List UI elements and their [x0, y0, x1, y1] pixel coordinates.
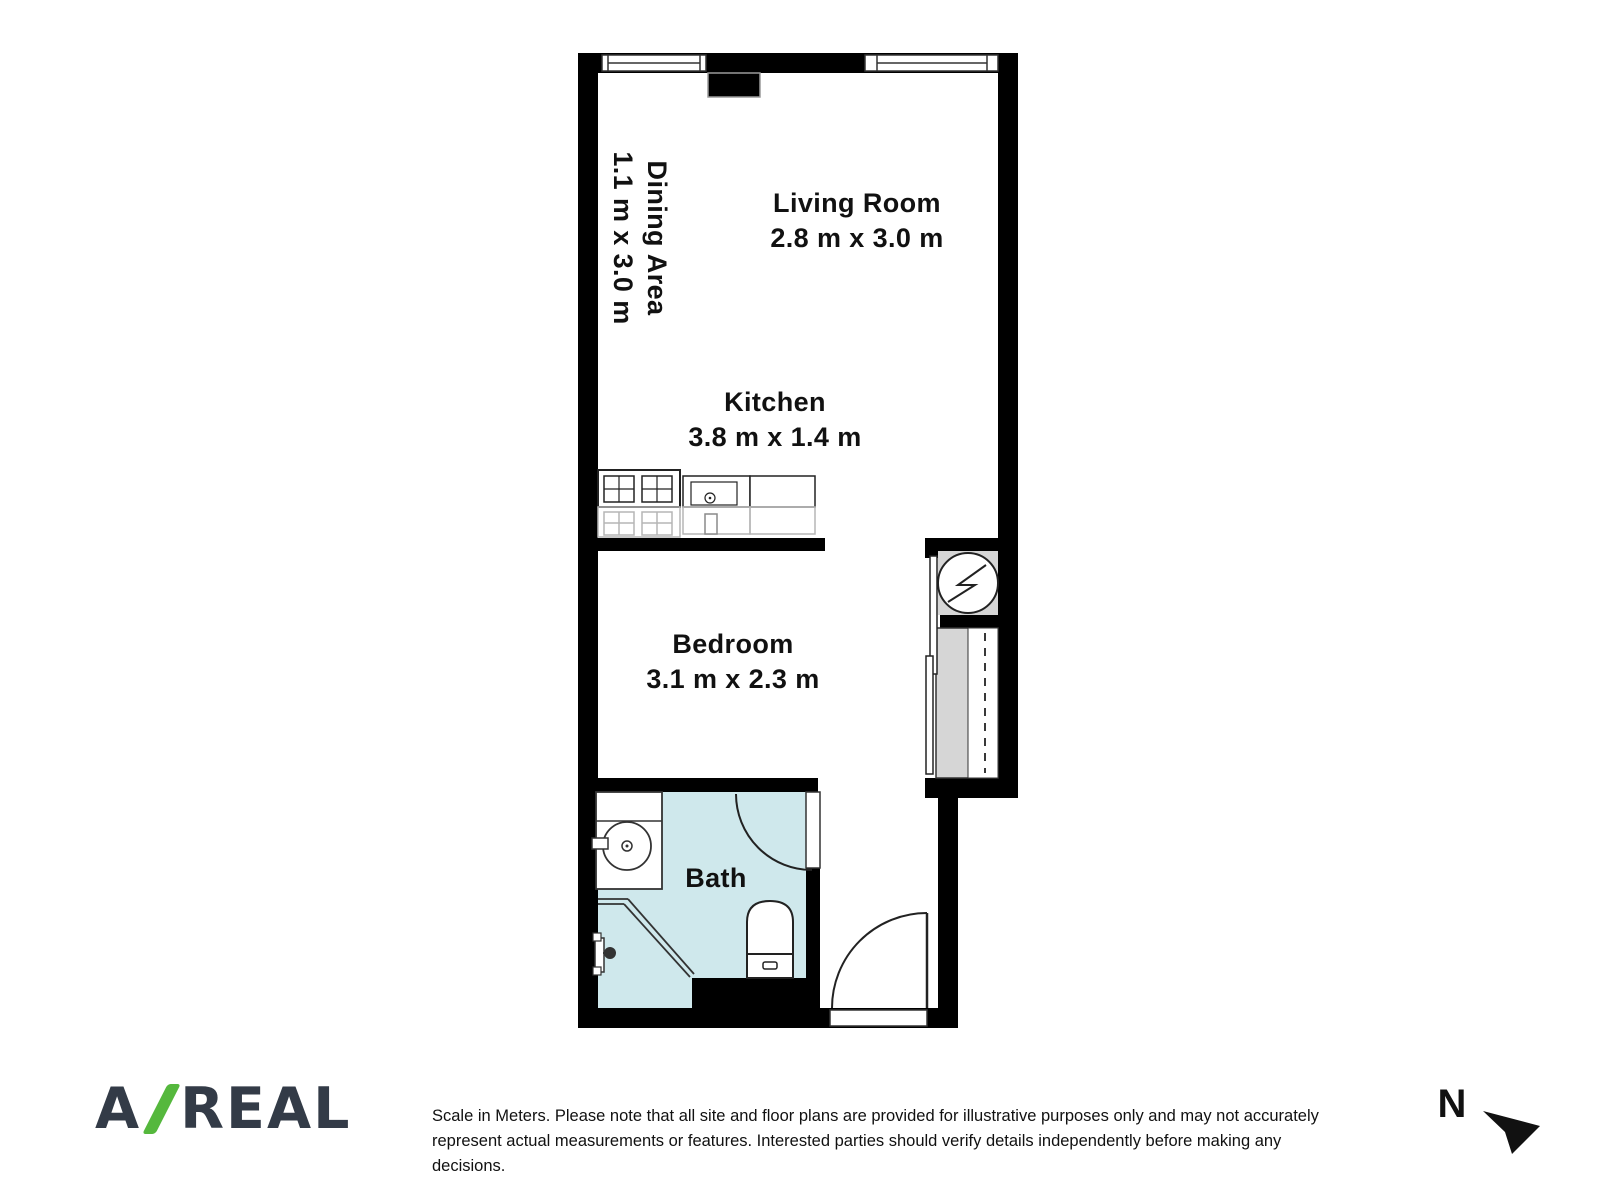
room-label-living: Living Room 2.8 m x 3.0 m [770, 188, 943, 253]
room-label-dining: Dining Area 1.1 m x 3.0 m [608, 151, 672, 324]
room-name: Dining Area [642, 161, 672, 317]
wall-niche-top [925, 538, 1018, 551]
wall-kitchen-bedroom [598, 538, 825, 551]
room-label-bath: Bath [685, 863, 747, 893]
compass-north-label: N [1438, 1082, 1467, 1126]
wall-left [578, 53, 598, 1028]
wall-bath-top [578, 778, 818, 792]
wall-protrusion [708, 73, 760, 97]
logo-word: REAL [180, 1082, 351, 1136]
room-dimensions: 3.1 m x 2.3 m [646, 664, 819, 694]
room-label-bedroom: Bedroom 3.1 m x 2.3 m [646, 629, 819, 694]
compass: N [1438, 1082, 1540, 1154]
wall-niche-bottom [940, 615, 998, 628]
bath-door-leaf [806, 792, 820, 868]
wall-niche-stub [925, 538, 938, 558]
disclaimer-line-2: represent actual measurements or feature… [432, 1129, 1352, 1179]
wall-bath-bottom-chunk [692, 978, 820, 1028]
entry-door-swing [832, 913, 927, 1008]
room-name: Bedroom [672, 629, 793, 659]
brand-logo: A REAL [95, 1082, 351, 1136]
stove-cooktop-icon [598, 470, 680, 507]
floorplan-page: Dining Area 1.1 m x 3.0 m Living Room 2.… [0, 0, 1600, 1200]
disclaimer-line-1: Scale in Meters. Please note that all si… [432, 1104, 1352, 1129]
window-icon-left [602, 55, 706, 71]
counter-icon [750, 476, 815, 507]
sliding-door-panel [926, 656, 933, 774]
wall-bath-right [806, 867, 820, 978]
room-dimensions: 2.8 m x 3.0 m [770, 223, 943, 253]
north-arrow-icon [1483, 1111, 1540, 1154]
room-name: Living Room [773, 188, 941, 218]
disclaimer-text: Scale in Meters. Please note that all si… [432, 1104, 1352, 1178]
room-name: Kitchen [724, 387, 826, 417]
kitchen-counter [598, 470, 815, 537]
floorplan-drawing: Dining Area 1.1 m x 3.0 m Living Room 2.… [0, 0, 1600, 1200]
logo-slash-icon [142, 1084, 180, 1134]
wall-entry-right [938, 778, 958, 1028]
vanity-sink-icon [592, 792, 662, 889]
wall-right [998, 53, 1018, 798]
counter-mirror [598, 507, 815, 537]
washer-icon [938, 553, 998, 613]
kitchen-sink-icon [683, 476, 750, 507]
entry-door-threshold [830, 1010, 927, 1026]
logo-letter-a: A [95, 1082, 141, 1136]
room-dimensions: 1.1 m x 3.0 m [608, 151, 638, 324]
room-name: Bath [685, 863, 747, 893]
toilet-icon [747, 901, 793, 978]
room-dimensions: 3.8 m x 1.4 m [688, 422, 861, 452]
room-label-kitchen: Kitchen 3.8 m x 1.4 m [688, 387, 861, 452]
wardrobe-closet [936, 628, 998, 778]
window-icon-right [865, 55, 998, 71]
